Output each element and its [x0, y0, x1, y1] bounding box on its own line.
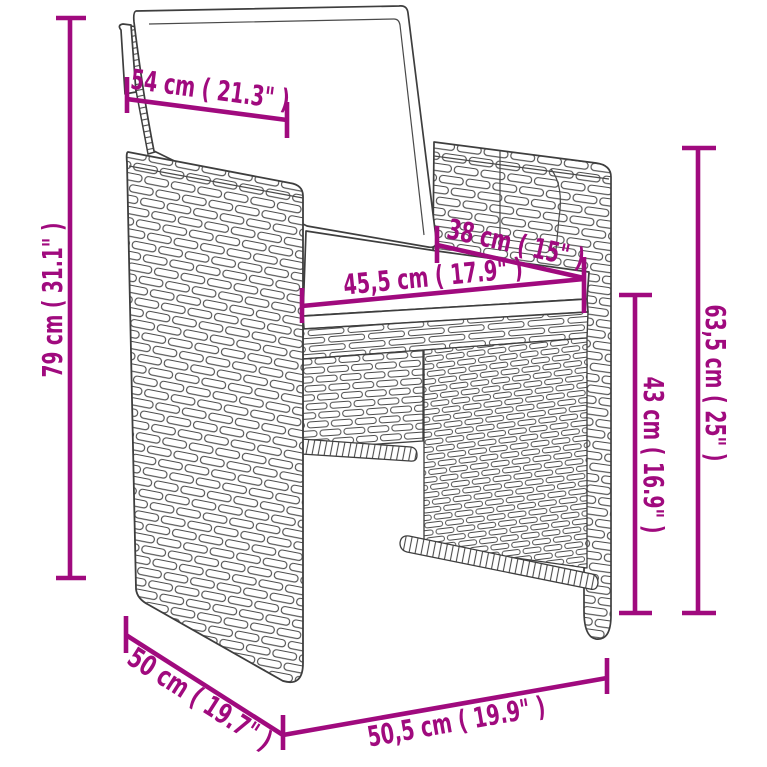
dimension-label-seat-height: 43 cm ( 16.9" ) [637, 377, 670, 534]
dimension-seat-height: 43 cm ( 16.9" ) [619, 295, 670, 613]
left-inner-wall [303, 350, 423, 449]
right-inner-wall [424, 338, 587, 568]
dimension-diagram: 54 cm ( 21.3" ) 79 cm ( 31.1" ) 38 cm ( … [0, 0, 767, 767]
dimension-label-armrest-height: 63,5 cm ( 25" ) [699, 305, 732, 462]
left-arm-panel [127, 152, 303, 682]
chair-diagram-svg: 54 cm ( 21.3" ) 79 cm ( 31.1" ) 38 cm ( … [0, 0, 767, 767]
dimension-label-front-width: 50,5 cm ( 19.9" ) [365, 690, 548, 754]
dimension-total-height: 79 cm ( 31.1" ) [36, 18, 86, 578]
dimension-armrest-height: 63,5 cm ( 25" ) [682, 148, 732, 613]
dimension-front-width: 50,5 cm ( 19.9" ) [283, 658, 607, 754]
dimension-label-total-height: 79 cm ( 31.1" ) [36, 223, 69, 378]
